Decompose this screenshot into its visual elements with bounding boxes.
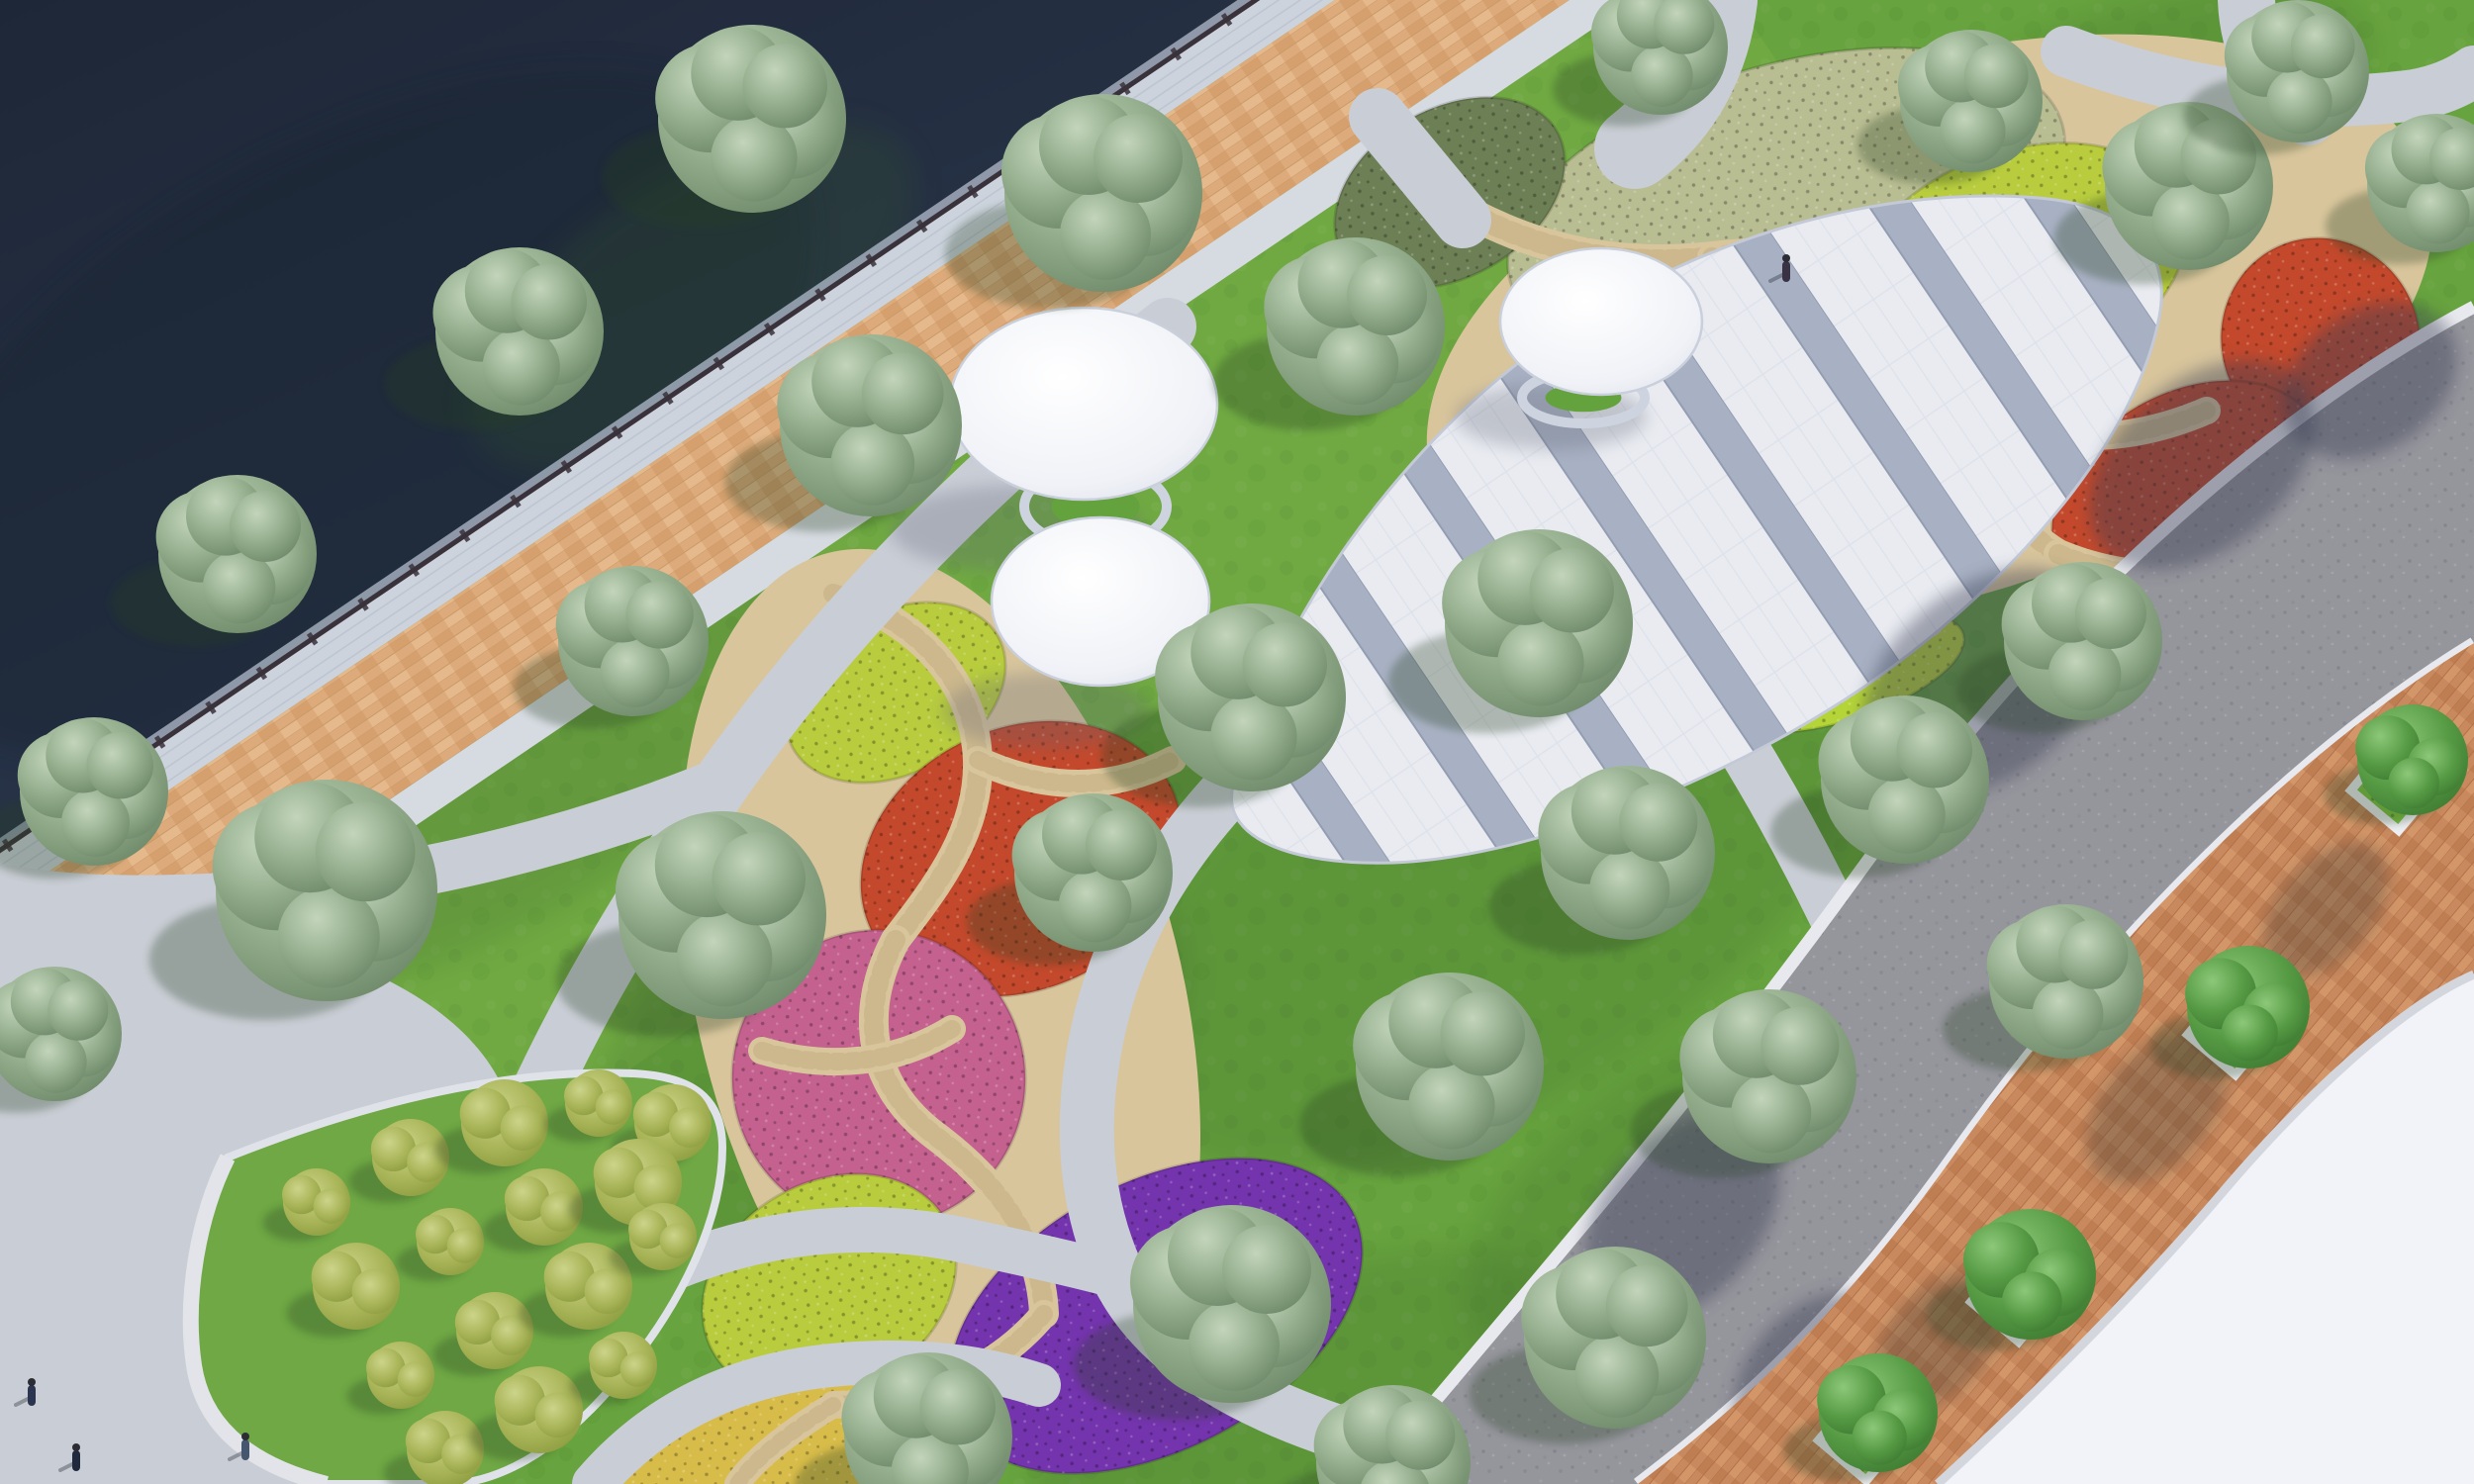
park-aerial-render <box>0 0 2474 1484</box>
scene-canvas <box>0 0 2474 1484</box>
canopy-disc <box>1500 248 1702 395</box>
canopy-disc <box>950 308 1217 500</box>
